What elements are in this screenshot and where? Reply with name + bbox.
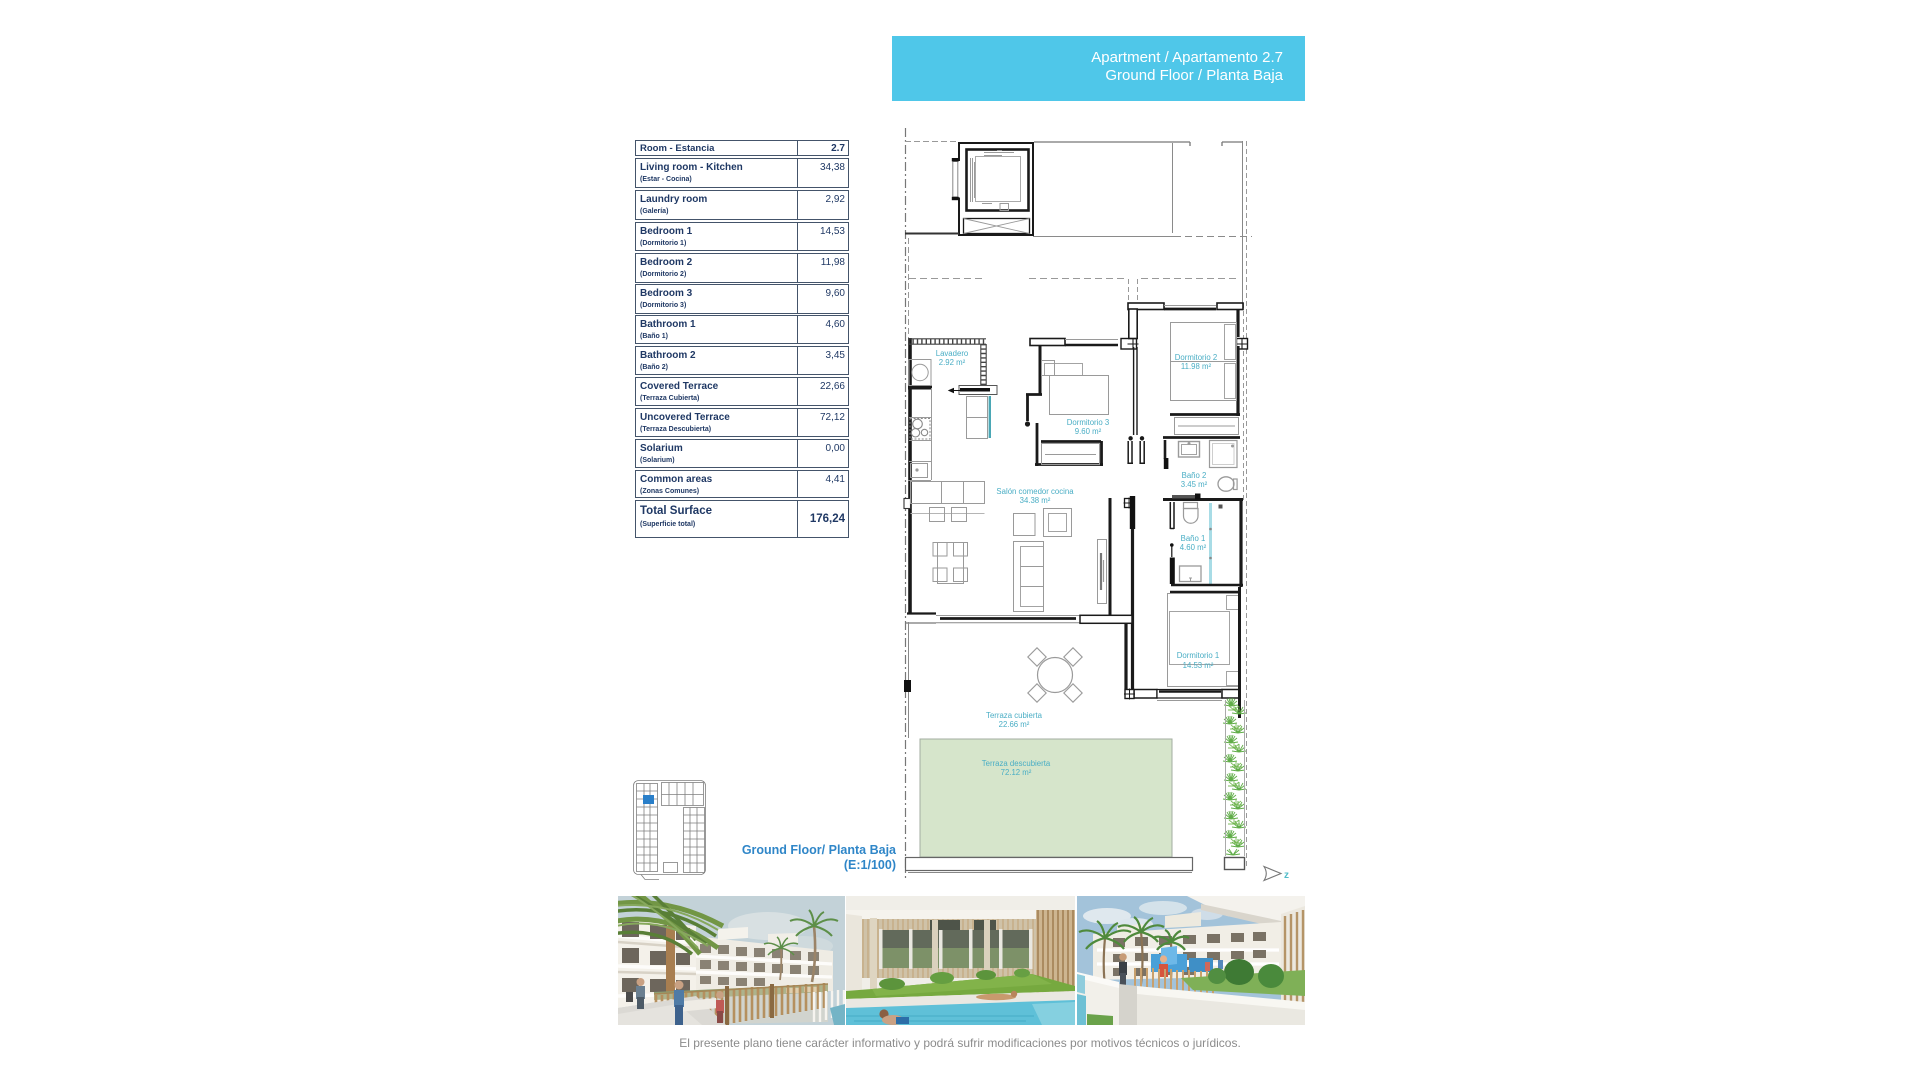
svg-text:14.53 m²: 14.53 m² [1183, 661, 1214, 670]
svg-text:3.45 m²: 3.45 m² [1181, 480, 1208, 489]
svg-text:4.60 m²: 4.60 m² [1180, 543, 1207, 552]
svg-text:z: z [1284, 870, 1289, 881]
svg-text:72.12 m²: 72.12 m² [1001, 768, 1032, 777]
svg-text:34.38 m²: 34.38 m² [1020, 496, 1051, 505]
svg-text:Lavadero: Lavadero [936, 349, 969, 358]
svg-text:Salón comedor cocina: Salón comedor cocina [996, 487, 1074, 496]
svg-text:22.66 m²: 22.66 m² [999, 720, 1030, 729]
svg-text:Terraza descubierta: Terraza descubierta [982, 759, 1051, 768]
svg-text:11.98 m²: 11.98 m² [1181, 362, 1212, 371]
svg-text:2.92 m²: 2.92 m² [939, 358, 966, 367]
svg-text:Terraza cubierta: Terraza cubierta [986, 711, 1043, 720]
svg-text:(E:1/100): (E:1/100) [844, 858, 896, 872]
svg-text:Baño 2: Baño 2 [1182, 471, 1207, 480]
svg-text:9.60 m²: 9.60 m² [1075, 427, 1102, 436]
svg-text:Dormitorio 3: Dormitorio 3 [1067, 418, 1109, 427]
svg-text:Ground Floor/ Planta Baja: Ground Floor/ Planta Baja [742, 843, 897, 857]
svg-text:Dormitorio 1: Dormitorio 1 [1177, 651, 1219, 660]
svg-text:Baño 1: Baño 1 [1181, 534, 1206, 543]
svg-text:Dormitorio 2: Dormitorio 2 [1175, 353, 1217, 362]
